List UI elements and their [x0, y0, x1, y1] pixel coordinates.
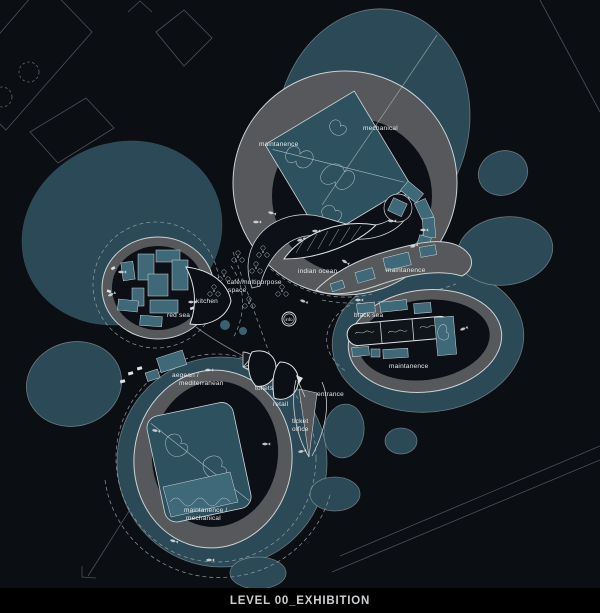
label-red-sea: red sea — [167, 312, 190, 319]
tree-icon — [276, 285, 288, 296]
label-ticket-line2: office — [292, 426, 309, 433]
water-blob-right-small — [472, 144, 534, 202]
label-maint-mech-line1: maintanence / — [184, 507, 227, 514]
level-title-bar: LEVEL 00_EXHIBITION — [0, 588, 600, 613]
tree-icon — [243, 297, 255, 308]
label-toilets: toilets — [255, 385, 274, 392]
label-maintanence-mid: maintanence — [386, 267, 426, 274]
label-cafe-line2: space — [228, 287, 247, 294]
label-maintanence-right: maintanence — [389, 363, 429, 370]
label-maintanence-top: maintanence — [259, 141, 299, 148]
water-blob-bottom-center — [310, 477, 360, 511]
label-kitchen: kitchen — [196, 298, 218, 305]
floor-plan-page: info — [0, 0, 600, 613]
water-blob-entrance — [320, 401, 367, 460]
water-blob-bottom-left — [17, 331, 131, 437]
label-ticket-line1: ticket — [292, 418, 308, 425]
label-mechanical: mechanical — [363, 125, 398, 132]
label-cafe-line1: café/multiporpose — [227, 279, 282, 286]
label-entrance: entrance — [317, 391, 344, 398]
label-retail: retail — [273, 401, 289, 408]
level-title: LEVEL 00_EXHIBITION — [230, 595, 370, 607]
label-maint-mech-line2: mechanical — [186, 515, 221, 522]
label-aegean-line2: mediterranean — [179, 380, 224, 387]
tree-dashed-circle-icon — [0, 87, 12, 107]
water-blob-entrance-small — [385, 428, 417, 454]
tree-dashed-circle-icon — [19, 62, 39, 82]
floor-plan-drawing: info — [0, 0, 600, 590]
label-aegean-line1: aegean / — [172, 372, 199, 379]
label-indian-ocean: indian ocean — [298, 268, 337, 275]
label-info: info — [285, 317, 293, 322]
info-circle-icon: info — [282, 312, 296, 326]
label-black-sea: black sea — [354, 312, 383, 319]
tree-icon — [232, 251, 244, 262]
